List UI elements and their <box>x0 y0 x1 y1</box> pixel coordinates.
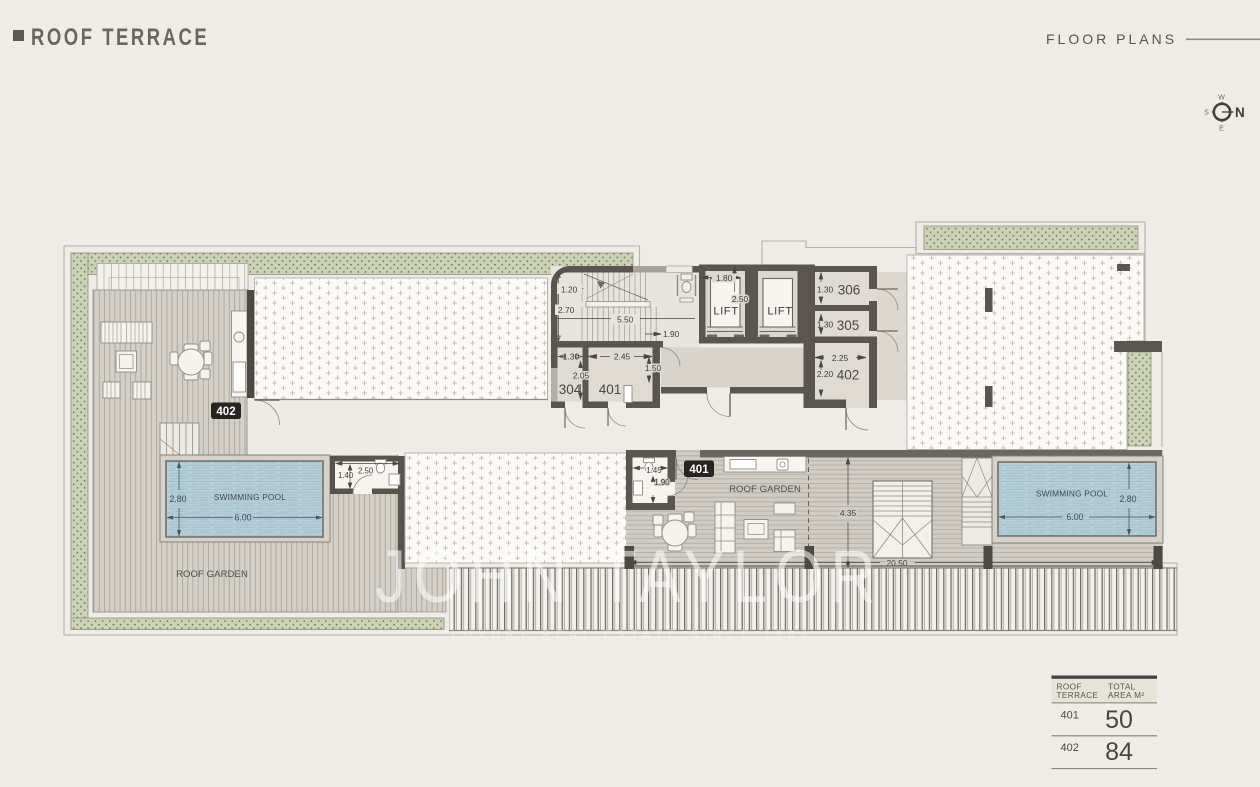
svg-text:AREA M²: AREA M² <box>1108 691 1144 700</box>
svg-text:LUXURY REAL ESTATE SINCE 1864: LUXURY REAL ESTATE SINCE 1864 <box>452 630 813 642</box>
svg-text:FLOOR PLANS: FLOOR PLANS <box>1046 31 1177 47</box>
svg-text:2.50: 2.50 <box>358 467 374 476</box>
svg-text:SWIMMING POOL: SWIMMING POOL <box>1036 489 1108 499</box>
svg-text:S: S <box>1204 110 1209 117</box>
svg-text:TERRACE: TERRACE <box>1057 691 1099 700</box>
svg-text:1.40: 1.40 <box>338 471 354 480</box>
svg-text:6.00: 6.00 <box>234 513 251 523</box>
svg-text:1.80: 1.80 <box>716 273 733 283</box>
svg-text:ROOF GARDEN: ROOF GARDEN <box>729 484 801 495</box>
svg-text:2.70: 2.70 <box>558 305 575 315</box>
svg-text:4.35: 4.35 <box>840 508 857 518</box>
svg-text:ROOF GARDEN: ROOF GARDEN <box>176 569 248 580</box>
svg-text:1.30: 1.30 <box>817 285 834 295</box>
svg-text:SWIMMING POOL: SWIMMING POOL <box>214 492 286 502</box>
svg-text:2.20: 2.20 <box>817 369 834 379</box>
svg-text:JOHN TAYLOR: JOHN TAYLOR <box>375 536 883 618</box>
svg-text:401: 401 <box>599 382 622 397</box>
svg-text:E: E <box>1219 126 1224 133</box>
svg-text:LIFT: LIFT <box>713 306 738 318</box>
svg-text:305: 305 <box>837 318 860 333</box>
svg-text:84: 84 <box>1105 738 1133 766</box>
svg-text:1.90: 1.90 <box>663 329 680 339</box>
svg-text:5.50: 5.50 <box>617 315 634 325</box>
svg-text:50: 50 <box>1105 706 1133 734</box>
svg-text:402: 402 <box>1061 742 1079 754</box>
svg-text:LIFT: LIFT <box>767 306 792 318</box>
svg-text:1.90: 1.90 <box>654 478 670 487</box>
svg-text:401: 401 <box>1061 710 1079 722</box>
svg-text:402: 402 <box>837 368 860 383</box>
svg-text:2.45: 2.45 <box>614 352 631 362</box>
svg-text:1.20: 1.20 <box>561 285 578 295</box>
svg-text:ROOF TERRACE: ROOF TERRACE <box>31 24 209 51</box>
svg-text:306: 306 <box>838 283 861 298</box>
svg-text:2.80: 2.80 <box>1119 494 1136 504</box>
svg-text:6.00: 6.00 <box>1066 512 1083 522</box>
svg-text:2.05: 2.05 <box>573 371 590 381</box>
svg-text:N: N <box>1235 105 1245 120</box>
svg-text:2.50: 2.50 <box>732 294 749 304</box>
svg-text:2.25: 2.25 <box>832 353 849 363</box>
svg-text:401: 401 <box>689 464 709 476</box>
svg-text:402: 402 <box>216 406 235 418</box>
svg-text:304: 304 <box>559 382 582 397</box>
svg-text:1.50: 1.50 <box>645 363 662 373</box>
svg-text:1.45: 1.45 <box>646 466 662 475</box>
svg-text:W: W <box>1218 95 1225 102</box>
svg-text:2.80: 2.80 <box>169 494 186 504</box>
